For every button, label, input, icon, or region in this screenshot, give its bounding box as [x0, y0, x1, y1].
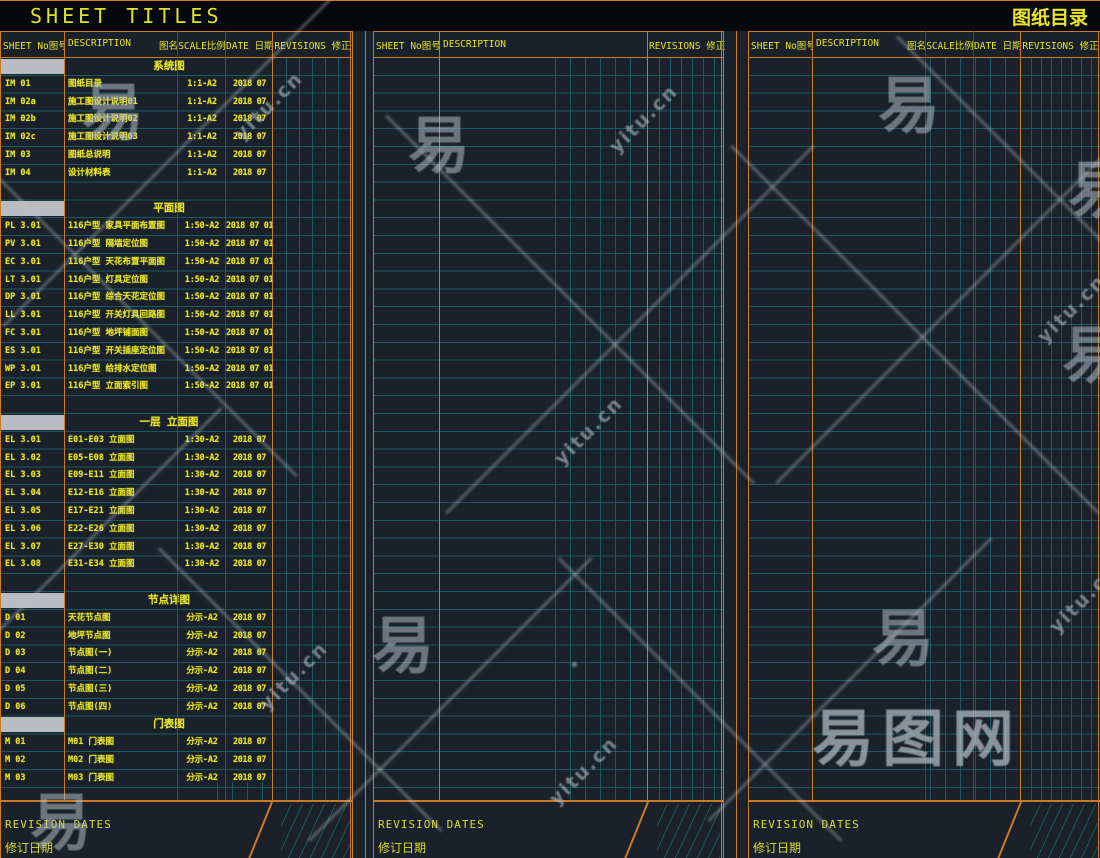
sheet-date-cell: 2018 07 [226, 521, 273, 539]
sheet-number-cell: LL 3.01 [0, 307, 65, 325]
sheet-date-cell: 2018 07 [226, 165, 273, 183]
revision-dates-label-cn: 修订日期 [753, 839, 801, 856]
footer-hatch [281, 804, 350, 858]
sheet-description-cell: 节点图(三) [65, 681, 178, 699]
panel-1-header: SHEET No图号 DESCRIPTION 图名 SCALE比例 DATE 日… [0, 31, 352, 58]
grid-vline [570, 58, 571, 800]
sheet-number-cell: LT 3.01 [0, 272, 65, 290]
section-title: 门表图 [65, 716, 273, 734]
col-header-description: DESCRIPTION 图名 [65, 38, 178, 52]
sheet-scale-cell: 分示-A2 [178, 699, 226, 717]
grid-vline [1061, 58, 1062, 800]
sheet-scale-cell: 分示-A2 [178, 610, 226, 628]
grid-vline [615, 58, 616, 800]
sheet-description-cell: E12-E16 立面图 [65, 485, 178, 503]
sheet-date-cell: 2018 07 [226, 503, 273, 521]
sheet-scale-cell: 1:50-A2 [178, 325, 226, 343]
sheet-number-cell: ES 3.01 [0, 343, 65, 361]
sheet-date-cell: 2018 07 [226, 147, 273, 165]
sheet-date-cell: 2018 07 01 [226, 272, 273, 290]
col-header-scale: SCALE比例 [926, 38, 974, 52]
sheet-number-cell: IM 02a [0, 94, 65, 112]
sheet-scale-cell: 1:1-A2 [178, 76, 226, 94]
grid-vline [262, 782, 263, 800]
grid-vline [721, 31, 722, 858]
sheet-scale-cell: 1:1-A2 [178, 147, 226, 165]
col-header-date: DATE 日期 [974, 38, 1021, 52]
sheet-description-cell: M02 门表图 [65, 752, 178, 770]
sheet-date-cell: 2018 07 01 [226, 378, 273, 396]
panel-3-footer: REVISION DATES 修订日期 [748, 800, 1100, 858]
col-header-sheet-no: SHEET No图号 [0, 38, 65, 52]
panel-2-footer: REVISION DATES 修订日期 [373, 800, 723, 858]
sheet-date-cell: 2018 07 [226, 770, 273, 788]
sheet-date-cell: 2018 07 [226, 76, 273, 94]
grid-vline [272, 31, 273, 800]
sheet-description-cell: 节点图(四) [65, 699, 178, 717]
revision-dates-label: REVISION DATES [753, 818, 860, 831]
sheet-number-cell: PL 3.01 [0, 218, 65, 236]
page-title-cn: 图纸目录 [1012, 3, 1088, 30]
section-band [0, 201, 64, 216]
sheet-number-cell: WP 3.01 [0, 361, 65, 379]
sheet-number-cell: EL 3.05 [0, 503, 65, 521]
sheet-number-cell: EL 3.01 [0, 432, 65, 450]
sheet-number-cell: EL 3.07 [0, 539, 65, 557]
grid-vline [585, 58, 586, 800]
sheet-description-cell: 地坪节点图 [65, 628, 178, 646]
grid-vline [748, 31, 749, 858]
sheet-number-cell: M 01 [0, 734, 65, 752]
grid-vline [1041, 58, 1042, 800]
grid-vline [990, 58, 991, 800]
section-title: 平面图 [65, 200, 273, 218]
sheet-description-cell: E01-E03 立面图 [65, 432, 178, 450]
sheet-description-cell: 116户型 隔墙定位图 [65, 236, 178, 254]
grid-vline [350, 31, 351, 858]
col-header-revisions: REVISIONS 修正 [649, 38, 723, 52]
col-header-sheet-no: SHEET No图号 [373, 38, 440, 52]
col-header-sheet-no: SHEET No图号 [748, 38, 813, 52]
grid-vline [600, 58, 601, 800]
section-title: 节点详图 [65, 592, 273, 610]
sheet-scale-cell: 1:30-A2 [178, 432, 226, 450]
section-band [0, 415, 64, 430]
sheet-number-cell: D 03 [0, 645, 65, 663]
sheet-date-cell: 2018 07 01 [226, 361, 273, 379]
sheet-date-cell: 2018 07 [226, 610, 273, 628]
sheet-date-cell: 2018 07 [226, 734, 273, 752]
sheet-number-cell: PV 3.01 [0, 236, 65, 254]
panel-separator [352, 31, 366, 858]
grid-vline [247, 782, 248, 800]
sheet-date-cell: 2018 07 [226, 556, 273, 574]
sheet-scale-cell: 1:1-A2 [178, 94, 226, 112]
section-band [0, 59, 64, 74]
section-band [0, 593, 64, 608]
col-header-revisions: REVISIONS 修正 [1021, 38, 1100, 52]
sheet-number-cell: D 02 [0, 628, 65, 646]
grid-vline [975, 58, 976, 800]
grid-vline [930, 58, 931, 800]
sheet-description-cell: 116户型 立面索引图 [65, 378, 178, 396]
sheet-description-cell: 116户型 综合天花定位图 [65, 289, 178, 307]
grid-vline [714, 58, 715, 800]
col-header-description-en: DESCRIPTION [68, 38, 131, 52]
panel-3: SHEET No图号 DESCRIPTION 图名 SCALE比例 DATE 日… [748, 31, 1100, 858]
sheet-description-cell: E09-E11 立面图 [65, 467, 178, 485]
sheet-scale-cell: 1:30-A2 [178, 467, 226, 485]
page-title: SHEET TITLES [30, 4, 223, 28]
sheet-date-cell: 2018 07 01 [226, 325, 273, 343]
grid-vline [960, 58, 961, 800]
sheet-number-cell: M 02 [0, 752, 65, 770]
grid-vline [312, 58, 313, 800]
revision-dates-label: REVISION DATES [378, 818, 485, 831]
grid-vline [925, 31, 926, 800]
sheet-scale-cell: 1:1-A2 [178, 111, 226, 129]
sheet-description-cell: 设计材料表 [65, 165, 178, 183]
sheet-scale-cell: 分示-A2 [178, 734, 226, 752]
revision-dates-label-cn: 修订日期 [378, 839, 426, 856]
grid-vline [630, 58, 631, 800]
col-header-description: DESCRIPTION [440, 39, 649, 50]
sheet-date-cell: 2018 07 01 [226, 289, 273, 307]
sheet-date-cell: 2018 07 [226, 752, 273, 770]
sheet-number-cell: EL 3.02 [0, 450, 65, 468]
sheet-date-cell: 2018 07 01 [226, 254, 273, 272]
sheet-description-cell: 节点图(一) [65, 645, 178, 663]
grid-vline [64, 31, 65, 800]
sheet-number-cell: D 04 [0, 663, 65, 681]
sheet-description-cell: 图纸目录 [65, 76, 178, 94]
cad-sheet-index-screen: SHEET TITLES 图纸目录 SHEET No图号 DESCRIPTION… [0, 0, 1100, 858]
sheet-description-cell: 116户型 开关插座定位图 [65, 343, 178, 361]
sheet-description-cell: M01 门表图 [65, 734, 178, 752]
sheet-scale-cell: 1:50-A2 [178, 272, 226, 290]
sheet-description-cell: 天花节点图 [65, 610, 178, 628]
grid-vline [439, 31, 440, 800]
grid-vline [1005, 58, 1006, 800]
sheet-description-cell: 节点图(二) [65, 663, 178, 681]
panel-3-header: SHEET No图号 DESCRIPTION 图名 SCALE比例 DATE 日… [748, 31, 1100, 58]
grid-vline [647, 31, 648, 800]
sheet-number-cell: D 01 [0, 610, 65, 628]
panel-1: SHEET No图号 DESCRIPTION 图名 SCALE比例 DATE 日… [0, 31, 352, 858]
sheet-description-cell: 116户型 天花布置平面图 [65, 254, 178, 272]
sheet-number-cell: EC 3.01 [0, 254, 65, 272]
col-header-description-en: DESCRIPTION [816, 38, 879, 52]
sheet-date-cell: 2018 07 [226, 450, 273, 468]
grid-vline [1031, 58, 1032, 800]
sheet-scale-cell: 分示-A2 [178, 645, 226, 663]
sheet-scale-cell: 分示-A2 [178, 628, 226, 646]
sheet-number-cell: EL 3.08 [0, 556, 65, 574]
grid-vline [325, 58, 326, 800]
grid-vline [670, 58, 671, 800]
col-header-revisions: REVISIONS 修正 [273, 38, 352, 52]
col-header-description-cn: 图名 [159, 38, 178, 52]
grid-vline [1051, 58, 1052, 800]
sheet-number-cell: FC 3.01 [0, 325, 65, 343]
grid-vline [703, 58, 704, 800]
sheet-scale-cell: 1:50-A2 [178, 378, 226, 396]
sheet-date-cell: 2018 07 01 [226, 236, 273, 254]
sheet-scale-cell: 分示-A2 [178, 663, 226, 681]
grid-vline [0, 31, 1, 858]
sheet-description-cell: 图纸总说明 [65, 147, 178, 165]
sheet-scale-cell: 1:30-A2 [178, 485, 226, 503]
sheet-date-cell: 2018 07 [226, 663, 273, 681]
sheet-description-cell: E27-E30 立面图 [65, 539, 178, 557]
sheet-scale-cell: 1:30-A2 [178, 539, 226, 557]
sheet-date-cell: 2018 07 [226, 94, 273, 112]
sheet-date-cell: 2018 07 [226, 111, 273, 129]
footer-diagonal-line [622, 802, 649, 858]
grid-vline [973, 31, 974, 800]
section-band [0, 717, 64, 732]
col-header-scale: SCALE比例 [178, 38, 226, 52]
sheet-description-cell: 施工图设计说明02 [65, 111, 178, 129]
sheet-description-cell: M03 门表图 [65, 770, 178, 788]
sheet-date-cell: 2018 07 [226, 432, 273, 450]
sheet-description-cell: 施工图设计说明03 [65, 129, 178, 147]
grid-vline [555, 58, 556, 800]
revision-dates-label-cn: 修订日期 [5, 839, 53, 856]
footer-hatch [1030, 804, 1100, 858]
grid-vline [1020, 31, 1021, 800]
col-header-description-cn: 图名 [907, 38, 926, 52]
grid-vline [286, 58, 287, 800]
sheet-date-cell: 2018 07 [226, 681, 273, 699]
section-title: 一层 立面图 [65, 414, 273, 432]
sheet-date-cell: 2018 07 [226, 129, 273, 147]
sheet-scale-cell: 1:50-A2 [178, 254, 226, 272]
grid-vline [681, 58, 682, 800]
sheet-scale-cell: 1:30-A2 [178, 521, 226, 539]
sheet-date-cell: 2018 07 [226, 467, 273, 485]
grid-vline [338, 58, 339, 800]
sheet-description-cell: E17-E21 立面图 [65, 503, 178, 521]
sheet-number-cell: M 03 [0, 770, 65, 788]
title-bar: SHEET TITLES 图纸目录 [0, 0, 1100, 31]
sheet-date-cell: 2018 07 01 [226, 307, 273, 325]
sheet-scale-cell: 1:1-A2 [178, 129, 226, 147]
sheet-date-cell: 2018 07 [226, 628, 273, 646]
sheet-description-cell: 116户型 家具平面布置图 [65, 218, 178, 236]
grid-vline [812, 31, 813, 800]
sheet-date-cell: 2018 07 01 [226, 218, 273, 236]
sheet-number-cell: D 05 [0, 681, 65, 699]
col-header-date: DATE 日期 [226, 38, 273, 52]
grid-vline [1081, 58, 1082, 800]
revision-dates-label: REVISION DATES [5, 818, 112, 831]
sheet-scale-cell: 1:50-A2 [178, 343, 226, 361]
sheet-number-cell: D 06 [0, 699, 65, 717]
sheet-date-cell: 2018 07 01 [226, 343, 273, 361]
grid-vline [1091, 58, 1092, 800]
sheet-scale-cell: 分示-A2 [178, 681, 226, 699]
sheet-description-cell: 116户型 地坪铺面图 [65, 325, 178, 343]
grid-vline [232, 782, 233, 800]
grid-vline [373, 31, 374, 858]
sheet-scale-cell: 分示-A2 [178, 752, 226, 770]
grid-vline [225, 31, 226, 800]
panel-2: SHEET No图号 DESCRIPTION REVISIONS 修正 REVI… [373, 31, 723, 858]
sheet-scale-cell: 1:50-A2 [178, 236, 226, 254]
sheet-number-cell: IM 03 [0, 147, 65, 165]
sheet-date-cell: 2018 07 [226, 539, 273, 557]
col-header-description: DESCRIPTION 图名 [813, 38, 926, 52]
panel-2-header: SHEET No图号 DESCRIPTION REVISIONS 修正 [373, 31, 723, 58]
grid-vline [177, 31, 178, 800]
sheet-number-cell: EL 3.04 [0, 485, 65, 503]
sheet-scale-cell: 1:30-A2 [178, 450, 226, 468]
grid-vline [217, 782, 218, 800]
sheet-number-cell: IM 01 [0, 76, 65, 94]
grid-vline [1071, 58, 1072, 800]
sheet-scale-cell: 1:50-A2 [178, 307, 226, 325]
sheet-date-cell: 2018 07 [226, 699, 273, 717]
sheet-scale-cell: 1:30-A2 [178, 556, 226, 574]
grid-vline [692, 58, 693, 800]
sheet-number-cell: EL 3.06 [0, 521, 65, 539]
panel-1-footer: REVISION DATES 修订日期 [0, 800, 352, 858]
panel-separator [723, 31, 737, 858]
sheet-description-cell: 116户型 灯具定位图 [65, 272, 178, 290]
footer-diagonal-line [995, 802, 1022, 858]
sheet-number-cell: EP 3.01 [0, 378, 65, 396]
sheet-scale-cell: 1:50-A2 [178, 361, 226, 379]
grid-vline [659, 58, 660, 800]
sheet-description-cell: 116户型 开关灯具回路图 [65, 307, 178, 325]
footer-hatch [657, 804, 720, 858]
sheet-date-cell: 2018 07 [226, 485, 273, 503]
grid-vline [1098, 31, 1099, 858]
grid-vline [299, 58, 300, 800]
panel-3-body [748, 58, 1100, 800]
sheet-description-cell: E22-E26 立面图 [65, 521, 178, 539]
sheet-description-cell: E05-E08 立面图 [65, 450, 178, 468]
sheet-scale-cell: 1:30-A2 [178, 503, 226, 521]
sheet-scale-cell: 1:1-A2 [178, 165, 226, 183]
sheet-description-cell: 施工图设计说明01 [65, 94, 178, 112]
sheet-description-cell: E31-E34 立面图 [65, 556, 178, 574]
sheet-number-cell: IM 02c [0, 129, 65, 147]
sheet-number-cell: EL 3.03 [0, 467, 65, 485]
sheet-scale-cell: 1:50-A2 [178, 218, 226, 236]
footer-diagonal-line [246, 802, 273, 858]
sheet-number-cell: DP 3.01 [0, 289, 65, 307]
sheet-description-cell: 116户型 给排水定位图 [65, 361, 178, 379]
sheet-scale-cell: 1:50-A2 [178, 289, 226, 307]
sheet-scale-cell: 分示-A2 [178, 770, 226, 788]
sheet-date-cell: 2018 07 [226, 645, 273, 663]
grid-vline [945, 58, 946, 800]
section-title: 系统图 [65, 58, 273, 76]
sheet-number-cell: IM 04 [0, 165, 65, 183]
sheet-number-cell: IM 02b [0, 111, 65, 129]
